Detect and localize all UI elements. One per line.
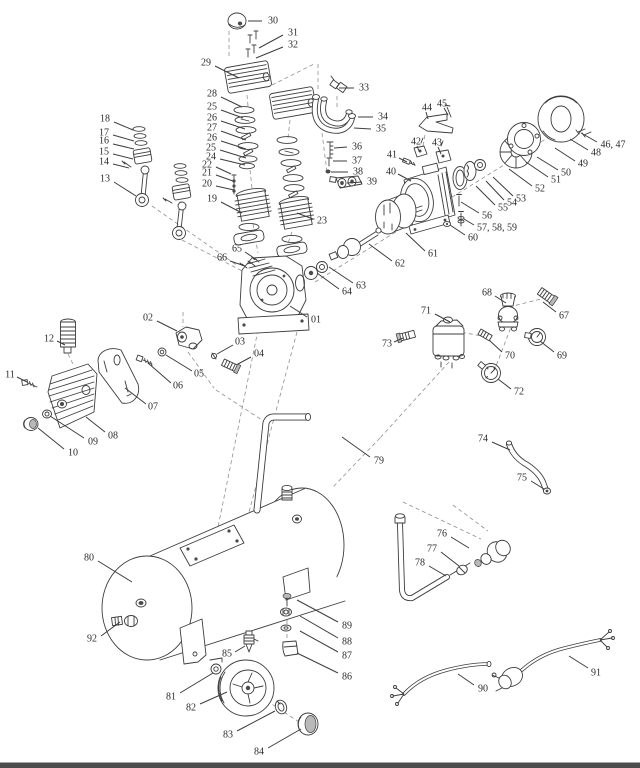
callout-label: 45 bbox=[437, 99, 447, 110]
leader-line bbox=[220, 150, 246, 158]
wheel-washer bbox=[211, 664, 221, 674]
wheel bbox=[218, 660, 274, 716]
leader-line bbox=[329, 267, 353, 283]
callout-label: 11 bbox=[5, 370, 15, 381]
filter-nut bbox=[43, 410, 52, 418]
callout-label: 33 bbox=[359, 83, 369, 94]
tube-nut-75 bbox=[543, 488, 550, 494]
leader-line bbox=[476, 186, 495, 205]
callout-label: 69 bbox=[557, 351, 567, 362]
callout-label: 76 bbox=[437, 529, 447, 540]
callout-label: 34 bbox=[378, 112, 388, 123]
callout-label: 72 bbox=[514, 387, 524, 398]
bracket-bolt bbox=[402, 158, 415, 165]
leader-line bbox=[334, 147, 347, 148]
callout-label: 77 bbox=[427, 544, 437, 555]
transfer-tube-78 bbox=[395, 514, 470, 598]
callout-label: 44 bbox=[422, 103, 432, 114]
callout-label: 61 bbox=[428, 249, 438, 260]
callout-label: 16 bbox=[99, 136, 109, 147]
callout-label: 23 bbox=[317, 216, 327, 227]
cylinder-head-1 bbox=[224, 60, 272, 93]
leader-line bbox=[486, 181, 504, 200]
leader-line bbox=[451, 537, 469, 548]
leader-line bbox=[498, 379, 511, 389]
leader-line bbox=[235, 646, 245, 652]
callout-label: 56 bbox=[482, 211, 492, 222]
elbow-washer bbox=[158, 348, 166, 356]
power-cord bbox=[492, 630, 615, 692]
callout-label: 91 bbox=[591, 668, 601, 679]
callout-label: 90 bbox=[478, 684, 488, 695]
retaining-ring bbox=[273, 699, 288, 716]
intake-elbow bbox=[176, 327, 202, 349]
discharge-pipes bbox=[313, 95, 356, 131]
hub-cap bbox=[298, 713, 318, 735]
leader-line bbox=[297, 653, 338, 673]
callout-label: 81 bbox=[166, 692, 176, 703]
callout-label: 70 bbox=[505, 351, 515, 362]
leader-line bbox=[570, 139, 588, 150]
callout-label: 68 bbox=[482, 288, 492, 299]
filter-cap bbox=[24, 418, 38, 431]
callout-label: 28 bbox=[207, 89, 217, 100]
leader-line bbox=[221, 110, 243, 118]
outlet-fitting-70 bbox=[478, 329, 492, 341]
filter-element bbox=[61, 319, 76, 353]
leader-line bbox=[114, 122, 133, 130]
callout-label: 42 bbox=[411, 137, 421, 148]
motor-lead-cable bbox=[391, 661, 492, 705]
callout-label: 43 bbox=[432, 138, 442, 149]
leader-line bbox=[354, 128, 371, 129]
callout-label: 82 bbox=[186, 703, 196, 714]
elbow-fitting-33 bbox=[330, 76, 347, 93]
leader-line bbox=[230, 261, 245, 266]
leader-line bbox=[256, 47, 283, 58]
piston-assembly-2 bbox=[163, 164, 191, 240]
leader-line bbox=[148, 363, 171, 383]
crankshaft bbox=[329, 228, 381, 260]
leader-line bbox=[526, 162, 548, 177]
callout-label: 39 bbox=[367, 177, 377, 188]
callout-label: 14 bbox=[99, 157, 109, 168]
leader-line bbox=[216, 175, 233, 181]
callout-label: 07 bbox=[148, 402, 158, 413]
callout-label: 04 bbox=[254, 349, 264, 360]
leader-line bbox=[113, 154, 133, 159]
leader-line bbox=[268, 729, 301, 748]
callout-label: 40 bbox=[386, 167, 396, 178]
callout-label: 75 bbox=[517, 473, 527, 484]
callout-label: 88 bbox=[342, 637, 352, 648]
leader-line bbox=[221, 97, 242, 107]
inlet-fitting-67 bbox=[537, 287, 558, 306]
callout-label: 78 bbox=[415, 558, 425, 569]
callout-label: 13 bbox=[100, 174, 110, 185]
leader-line bbox=[493, 177, 513, 196]
callout-label: 06 bbox=[173, 381, 183, 392]
callout-label: 09 bbox=[88, 437, 98, 448]
head-bolts bbox=[246, 31, 258, 57]
leader-line bbox=[180, 673, 213, 693]
leader-line bbox=[429, 566, 446, 576]
callout-label: 36 bbox=[352, 142, 362, 153]
callout-label: 54 bbox=[507, 198, 517, 209]
leader-line bbox=[450, 225, 465, 235]
leader-line bbox=[464, 219, 474, 225]
nipple-fitting-04 bbox=[221, 358, 241, 374]
leader-line bbox=[221, 141, 246, 149]
leader-line bbox=[369, 244, 392, 261]
callout-label: 86 bbox=[342, 672, 352, 683]
callout-label: 62 bbox=[395, 259, 405, 270]
cylinder-2 bbox=[276, 194, 315, 257]
leader-line bbox=[569, 656, 588, 668]
leader-line bbox=[157, 321, 177, 331]
leader-line bbox=[38, 428, 64, 449]
leader-line bbox=[166, 355, 192, 371]
callout-label: 64 bbox=[342, 287, 352, 298]
drain-valve bbox=[244, 631, 258, 652]
gauge-72 bbox=[478, 362, 501, 383]
head-bolt-spring bbox=[232, 175, 236, 194]
filter-gasket-plate bbox=[98, 349, 139, 404]
callout-label: 31 bbox=[288, 28, 298, 39]
callout-label: 21 bbox=[202, 168, 212, 179]
leader-line bbox=[113, 144, 134, 149]
callout-label: 12 bbox=[44, 334, 54, 345]
intake-cap bbox=[228, 13, 246, 29]
leader-line bbox=[317, 273, 339, 289]
leader-line bbox=[220, 159, 245, 165]
callout-label: 49 bbox=[578, 159, 588, 170]
pressure-switch bbox=[433, 317, 465, 368]
leader-line bbox=[216, 167, 231, 174]
leader-line bbox=[217, 345, 233, 354]
leader-line bbox=[238, 357, 251, 364]
callout-label: 60 bbox=[468, 233, 478, 244]
leader-line bbox=[221, 131, 246, 140]
filter-housing bbox=[48, 364, 97, 428]
exploded-parts-diagram: 3031322933343528252627262524222120191817… bbox=[0, 0, 640, 768]
callout-label: 65 bbox=[232, 244, 242, 255]
callout-label: 52 bbox=[535, 184, 545, 195]
callout-label: 48 bbox=[591, 148, 601, 159]
callout-label: 73 bbox=[382, 339, 392, 350]
callout-label: 83 bbox=[223, 730, 233, 741]
leader-line bbox=[259, 35, 283, 48]
leader-line bbox=[216, 186, 234, 190]
leader-line bbox=[221, 121, 245, 129]
callout-label: 38 bbox=[353, 167, 363, 178]
leader-line bbox=[489, 340, 502, 352]
callout-label: 03 bbox=[235, 337, 245, 348]
callout-label: 57, 58, 59 bbox=[477, 223, 517, 234]
leader-line bbox=[581, 133, 597, 142]
callout-label: 85 bbox=[222, 649, 232, 660]
callout-label: 53 bbox=[516, 194, 526, 205]
callout-label: 46, 47 bbox=[601, 140, 626, 151]
pump-crankcase bbox=[238, 256, 309, 334]
leader-line bbox=[441, 552, 459, 566]
callout-label: 30 bbox=[268, 16, 278, 27]
callout-label: 18 bbox=[100, 114, 110, 125]
callout-label: 63 bbox=[356, 281, 366, 292]
callout-label: 41 bbox=[387, 150, 397, 161]
callout-label: 01 bbox=[311, 315, 321, 326]
exploded-parts-diagram-page: 3031322933343528252627262524222120191817… bbox=[0, 0, 640, 768]
callout-label: 92 bbox=[87, 634, 97, 645]
callout-label: 35 bbox=[376, 124, 386, 135]
page-edge-bar bbox=[0, 763, 640, 768]
callout-label: 87 bbox=[342, 651, 352, 662]
callout-label: 89 bbox=[342, 621, 352, 632]
leader-line bbox=[540, 341, 554, 352]
callout-label: 51 bbox=[551, 175, 561, 186]
callout-label: 66 bbox=[217, 253, 227, 264]
leader-line bbox=[406, 233, 425, 251]
callout-label: 50 bbox=[561, 168, 571, 179]
leader-line bbox=[113, 164, 129, 168]
callout-label: 05 bbox=[194, 369, 204, 380]
tank-fitting-73 bbox=[396, 329, 416, 342]
callout-label: 84 bbox=[254, 747, 264, 758]
callout-label: 55 bbox=[498, 203, 508, 214]
callout-label: 10 bbox=[68, 448, 78, 459]
callout-label: 29 bbox=[201, 58, 211, 69]
callout-label: 08 bbox=[108, 431, 118, 442]
callout-label: 71 bbox=[421, 306, 431, 317]
callout-label: 19 bbox=[207, 194, 217, 205]
callout-label: 67 bbox=[559, 311, 569, 322]
leader-line bbox=[342, 437, 370, 457]
check-valve-76 bbox=[473, 538, 513, 568]
callout-label: 02 bbox=[143, 313, 153, 324]
callout-label: 80 bbox=[84, 553, 94, 564]
leader-line bbox=[458, 674, 474, 685]
regulator bbox=[498, 293, 518, 331]
small-fitting-03 bbox=[211, 353, 216, 359]
cylinder-head-2 bbox=[269, 86, 317, 119]
cylinder-1 bbox=[233, 186, 272, 245]
leader-line bbox=[509, 169, 532, 186]
callout-label: 20 bbox=[202, 179, 212, 190]
leader-line bbox=[555, 148, 575, 161]
callout-label: 25 bbox=[207, 102, 217, 113]
leader-line bbox=[113, 135, 134, 141]
callout-label: 37 bbox=[352, 156, 362, 167]
callout-label: 32 bbox=[288, 40, 298, 51]
leader-line bbox=[114, 182, 136, 196]
leader-line bbox=[537, 157, 558, 170]
leader-line bbox=[86, 417, 105, 432]
callout-label: 74 bbox=[478, 434, 488, 445]
callout-label: 79 bbox=[374, 456, 384, 467]
